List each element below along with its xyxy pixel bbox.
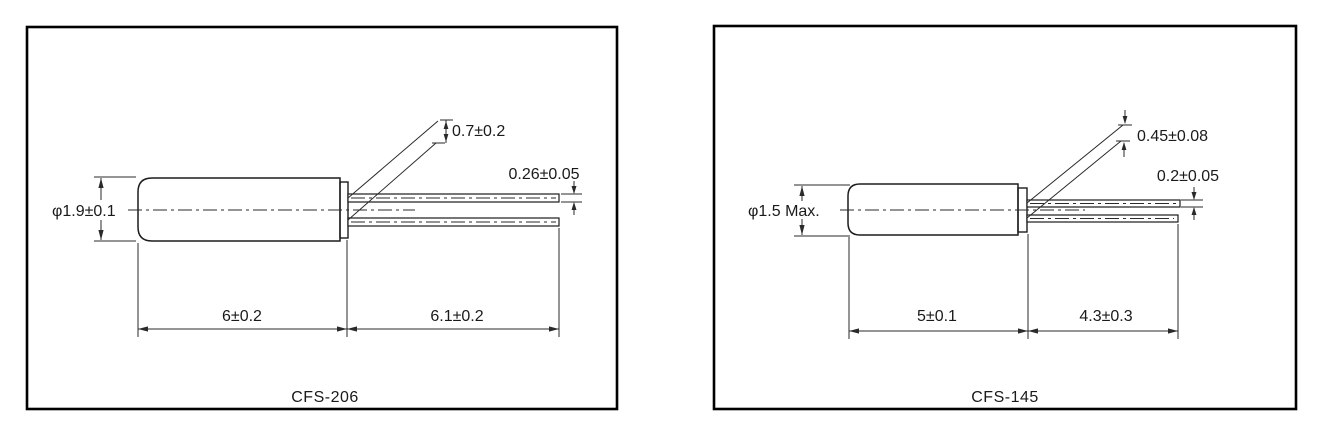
technical-drawing: 0.7±0.2 0.26±0.05 φ1.9±0.1 [0,0,1317,428]
lead-spacing-dimension-label: 0.45±0.08 [1137,128,1208,145]
lead-thickness-dimension-label: 0.2±0.05 [1157,168,1219,185]
lead-spacing-dimension: 0.45±0.08 [1116,110,1208,157]
lead-thickness-dimension: 0.26±0.05 [508,166,582,215]
drawing-canvas: 0.7±0.2 0.26±0.05 φ1.9±0.1 [0,0,1317,428]
lead-length-dimension-label: 6.1±0.2 [430,308,483,325]
cfs-206-panel: 0.7±0.2 0.26±0.05 φ1.9±0.1 [27,27,617,409]
body-length-dimension-label: 5±0.1 [917,308,957,325]
diameter-dimension-label: φ1.5 Max. [748,203,820,220]
lead-thickness-dimension: 0.2±0.05 [1157,168,1219,220]
length-dimensions: 5±0.1 4.3±0.3 [849,224,1178,339]
diameter-dimension-label: φ1.9±0.1 [52,203,116,220]
body-length-dimension-label: 6±0.2 [222,308,262,325]
lead-length-dimension-label: 4.3±0.3 [1079,308,1132,325]
lead-spacing-dimension-label: 0.7±0.2 [452,123,505,140]
lead-spacing-dimension: 0.7±0.2 [432,120,505,143]
diameter-dimension: φ1.9±0.1 [52,177,136,241]
cfs-145-panel: 0.45±0.08 0.2±0.05 φ1.5 Max. [714,26,1296,409]
diameter-dimension: φ1.5 Max. [748,185,850,236]
panel-title: CFS-145 [971,389,1039,406]
lead-thickness-dimension-label: 0.26±0.05 [508,166,579,183]
length-dimensions: 6±0.2 6.1±0.2 [138,228,559,337]
lead-spacing-leaders [348,121,438,220]
panel-title: CFS-206 [291,389,359,406]
